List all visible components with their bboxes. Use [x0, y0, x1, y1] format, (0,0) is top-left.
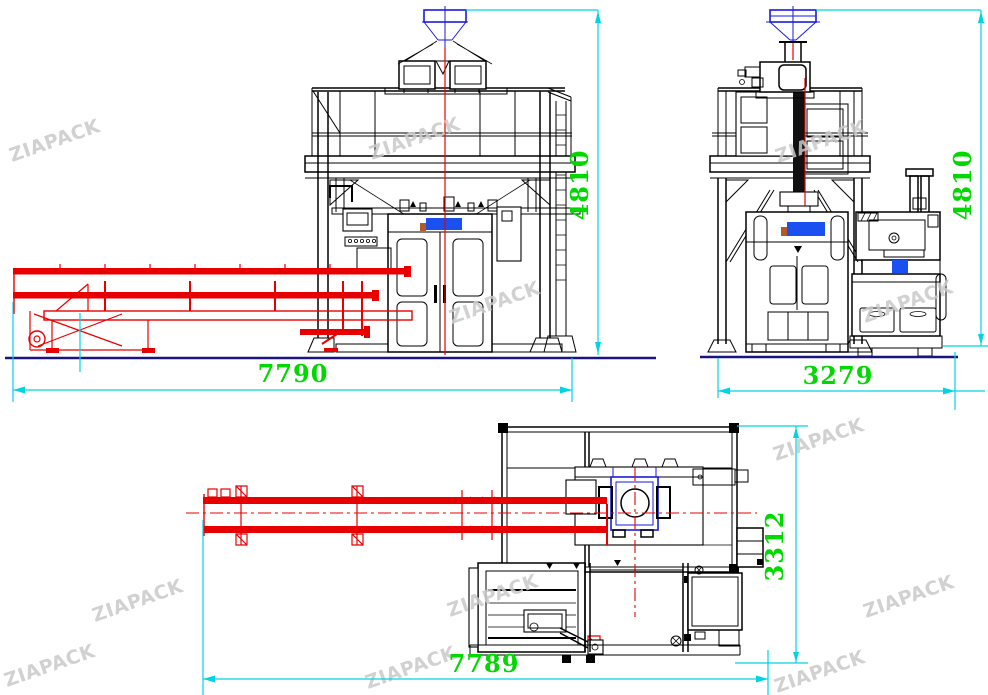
plan-view: [186, 423, 763, 663]
watermark: ZIAPACK: [1, 640, 98, 692]
brand-logo-sewing: [892, 260, 908, 273]
dim-label-front-width: 7790: [258, 359, 329, 388]
clamp-tower: [906, 169, 933, 214]
dim-label-plan-depth: 3312: [760, 511, 789, 582]
watermark: ZIAPACK: [860, 571, 957, 623]
front-cabinet: [388, 214, 492, 352]
door-handle: [434, 285, 437, 303]
front-view: [5, 6, 656, 358]
packing-machine-drawing: ZIAPACK ZIAPACK ZIAPACK ZIAPACK ZIAPACK …: [0, 0, 988, 695]
watermark: ZIAPACK: [771, 646, 868, 695]
dim-label-front-height: 4810: [565, 150, 594, 221]
watermark: ZIAPACK: [6, 115, 103, 167]
watermark: ZIAPACK: [89, 575, 186, 627]
top-motor: [760, 62, 810, 92]
brand-logo-front: [420, 218, 462, 231]
brand-logo-side: [781, 222, 825, 236]
watermark: ZIAPACK: [770, 414, 867, 466]
watermark: ZIAPACK: [362, 642, 459, 694]
dimension-side-width: 3279: [718, 352, 985, 410]
dim-label-side-height: 4810: [948, 150, 977, 221]
bag-sewing-unit: [850, 169, 946, 356]
weigher-head: [385, 41, 507, 94]
dim-label-plan-width: 7789: [449, 649, 520, 678]
engineering-drawing-page: ZIAPACK ZIAPACK ZIAPACK ZIAPACK ZIAPACK …: [0, 0, 988, 695]
side-cabinet: [746, 212, 848, 352]
infeed-conveyor-front: [13, 264, 412, 353]
dim-label-side-width: 3279: [803, 361, 874, 390]
